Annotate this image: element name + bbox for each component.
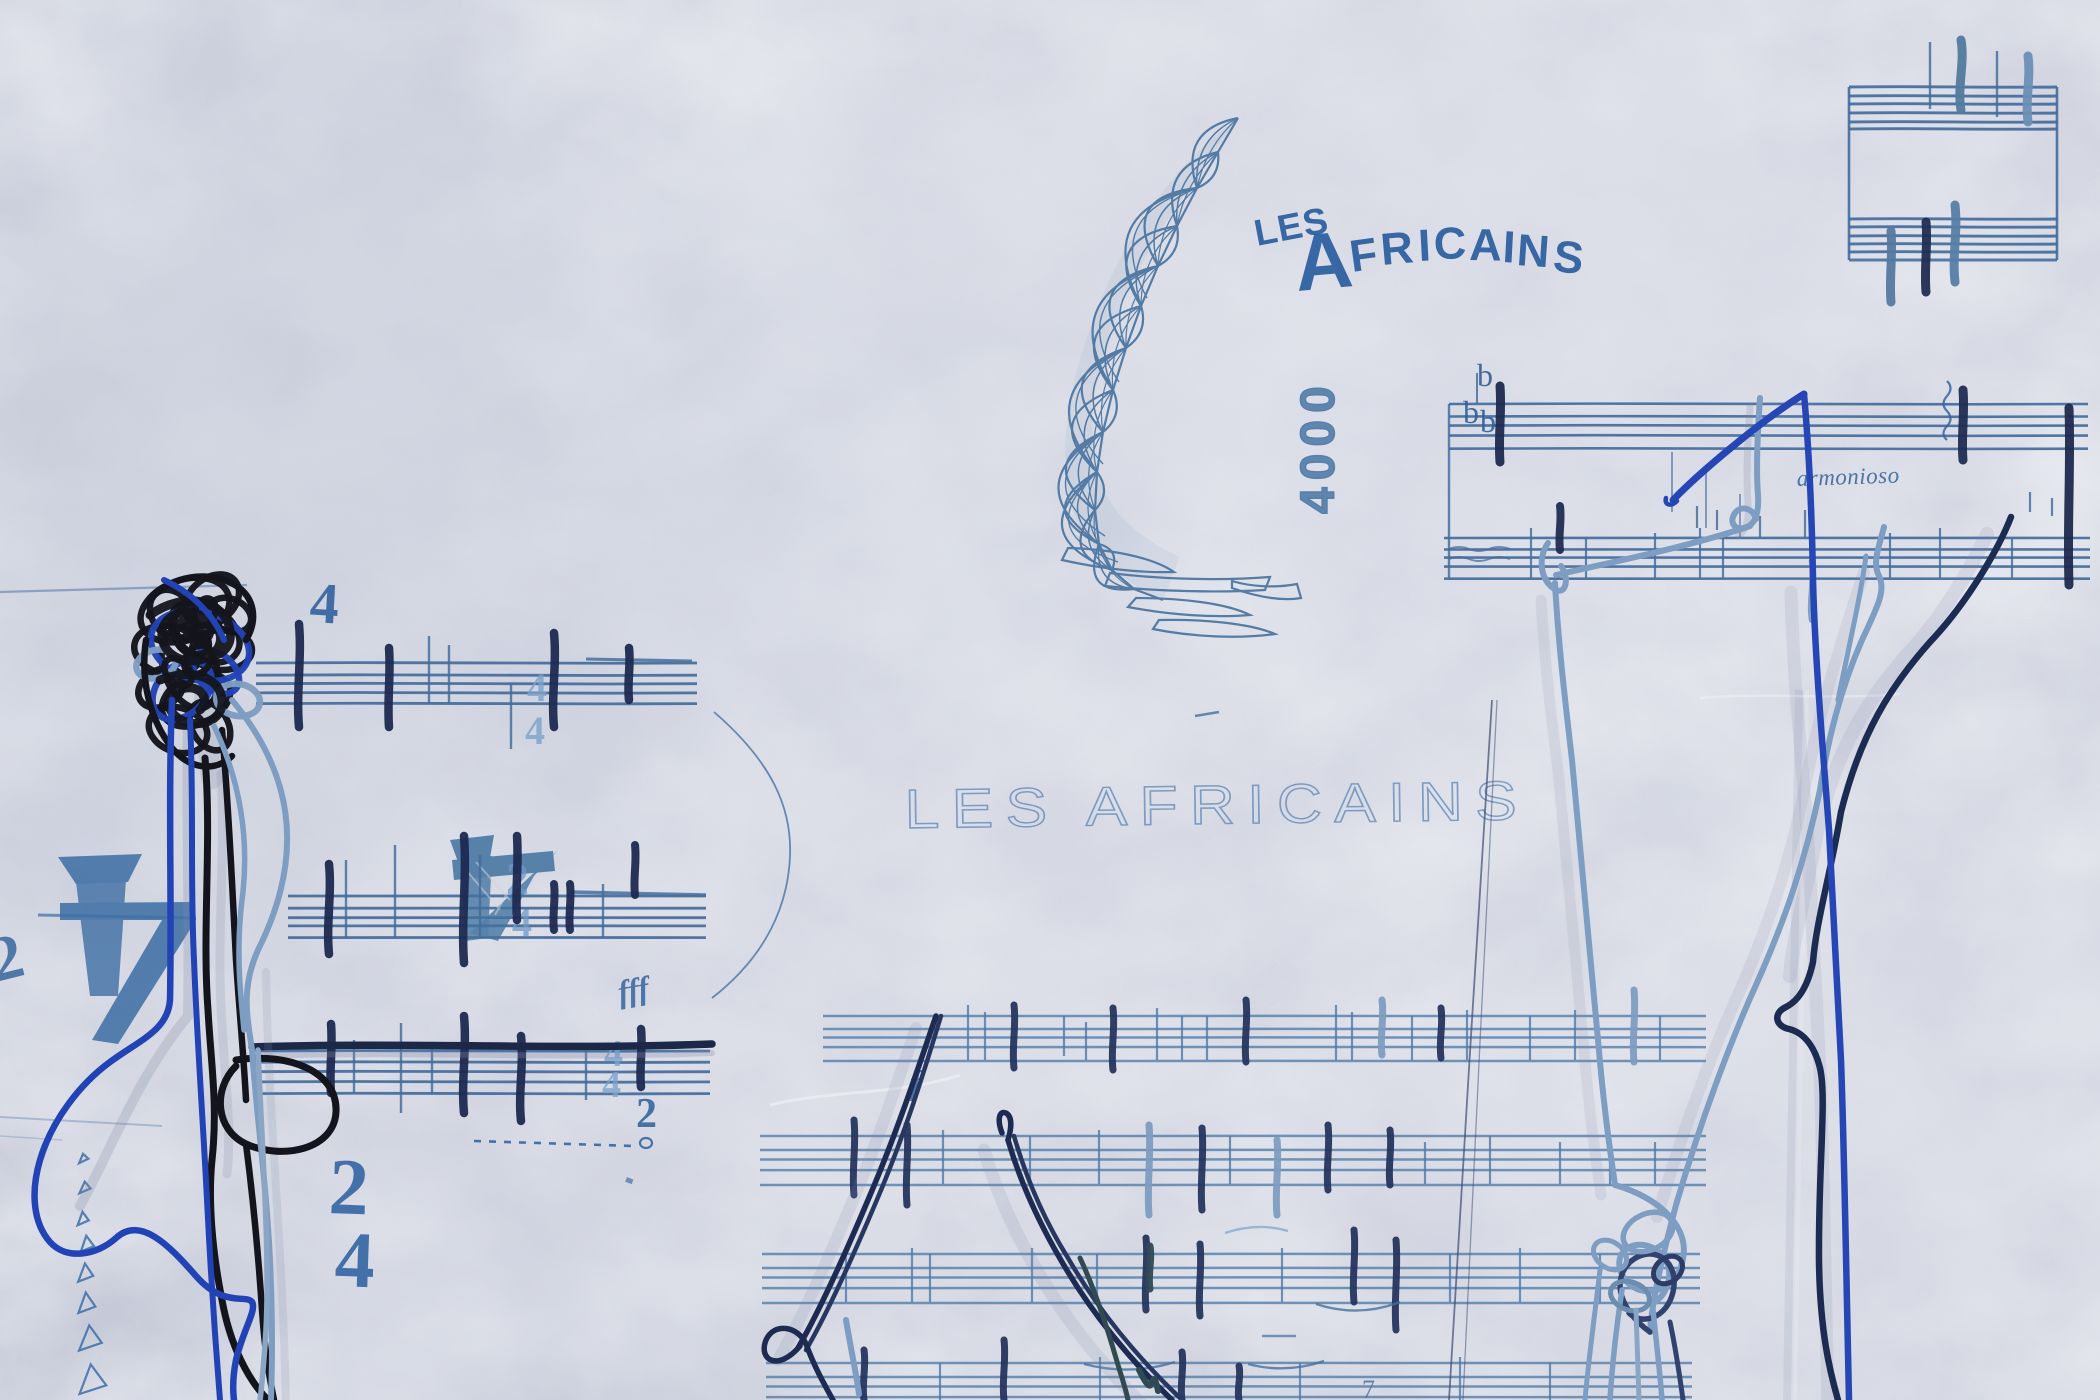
svg-text:LES AFRICAINS: LES AFRICAINS — [904, 771, 1529, 841]
svg-text:S: S — [1551, 230, 1586, 284]
svg-text:b: b — [1480, 403, 1496, 439]
svg-text:4: 4 — [333, 1216, 376, 1305]
svg-text:7: 7 — [1362, 1375, 1375, 1400]
svg-text:R: R — [1378, 221, 1415, 275]
svg-text:4: 4 — [602, 1064, 621, 1106]
svg-text:4: 4 — [308, 570, 340, 636]
svg-text:A: A — [1469, 219, 1502, 271]
svg-text:I: I — [1417, 219, 1432, 271]
svg-text:A: A — [1291, 214, 1356, 308]
svg-text:N: N — [1515, 224, 1551, 277]
svg-text:4000: 4000 — [1292, 379, 1345, 514]
svg-text:4: 4 — [525, 708, 545, 753]
svg-text:I: I — [1501, 221, 1516, 273]
svg-text:b: b — [1477, 357, 1493, 393]
svg-text:4: 4 — [527, 665, 547, 710]
svg-text:C: C — [1433, 217, 1466, 269]
svg-text:2: 2 — [636, 1091, 657, 1137]
